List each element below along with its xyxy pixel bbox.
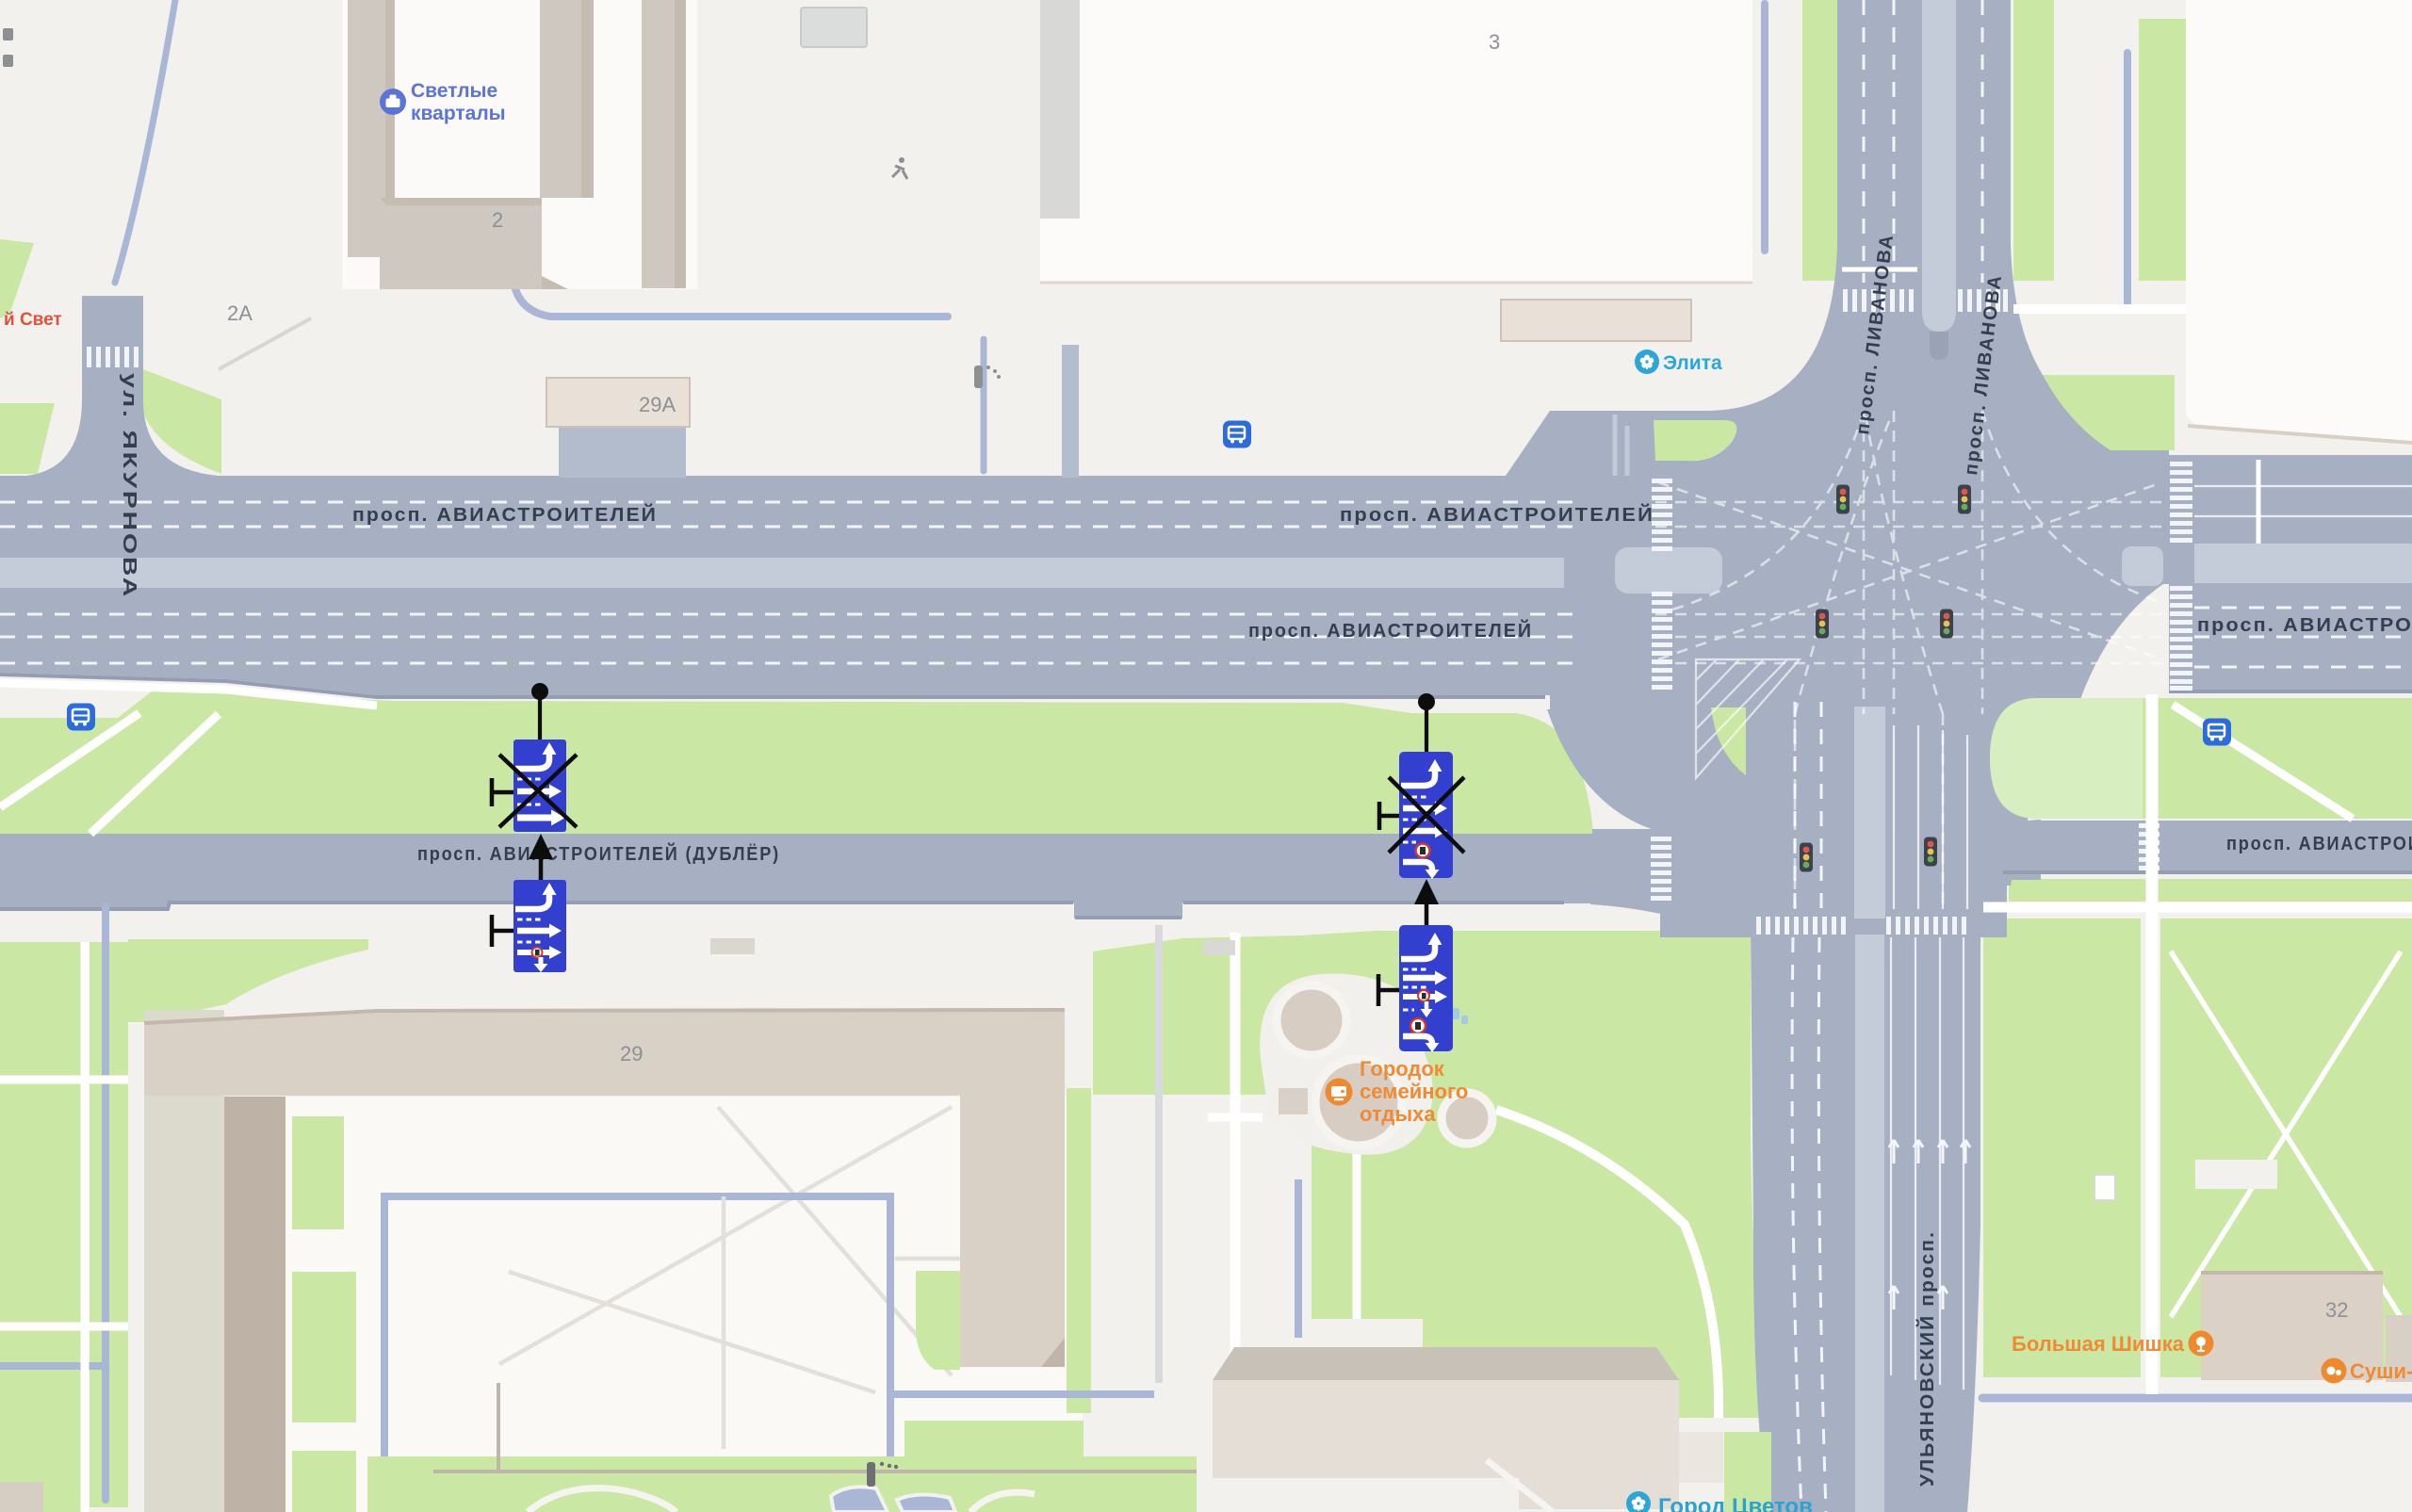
svg-text:29: 29 <box>620 1042 643 1065</box>
svg-text:32: 32 <box>2325 1298 2348 1322</box>
svg-text:УЛЬЯНОВСКИЙ просп.: УЛЬЯНОВСКИЙ просп. <box>1915 1230 1938 1487</box>
svg-text:Суши-: Суши- <box>2350 1359 2412 1383</box>
svg-text:Элита: Элита <box>1663 352 1722 374</box>
svg-text:ул. ЯКУРНОВА: ул. ЯКУРНОВА <box>119 373 139 599</box>
svg-text:просп. АВИАСТРОИТЕЛЕЙ: просп. АВИАСТРОИТЕЛЕЙ <box>1248 619 1533 642</box>
svg-text:2: 2 <box>492 208 503 232</box>
svg-text:3: 3 <box>1489 30 1500 54</box>
svg-text:просп. АВИАСТРОИТЕЛЕЙ: просп. АВИАСТРОИТЕЛЕЙ <box>1340 503 1654 526</box>
svg-text:Большая Шишка: Большая Шишка <box>2012 1332 2185 1356</box>
svg-text:й Свет: й Свет <box>4 310 62 330</box>
svg-text:Светлые: Светлые <box>411 80 497 102</box>
svg-text:кварталы: кварталы <box>411 103 506 124</box>
svg-text:Город Цветов: Город Цветов <box>1658 1494 1813 1512</box>
svg-text:Городок: Городок <box>1360 1057 1445 1081</box>
svg-text:просп. АВИАСТРОИТЕЛЕЙ (ДУБЛЁР): просп. АВИАСТРОИТЕЛЕЙ (ДУБЛЁР) <box>417 842 780 865</box>
svg-text:просп. АВИАСТРОИТЕЛЕЙ: просп. АВИАСТРОИТЕЛЕЙ <box>2197 613 2412 636</box>
svg-text:семейного: семейного <box>1360 1080 1468 1103</box>
svg-text:отдыха: отдыха <box>1360 1102 1436 1126</box>
svg-text:2А: 2А <box>227 301 253 325</box>
svg-text:просп. АВИАСТРОИТЕЛЕЙ: просп. АВИАСТРОИТЕЛЕЙ <box>352 503 658 526</box>
svg-text:просп. АВИАСТРОИТЕЛЕЙ (ДУБЛЁР): просп. АВИАСТРОИТЕЛЕЙ (ДУБЛЁР) <box>2226 832 2412 854</box>
svg-text:29А: 29А <box>639 393 676 416</box>
